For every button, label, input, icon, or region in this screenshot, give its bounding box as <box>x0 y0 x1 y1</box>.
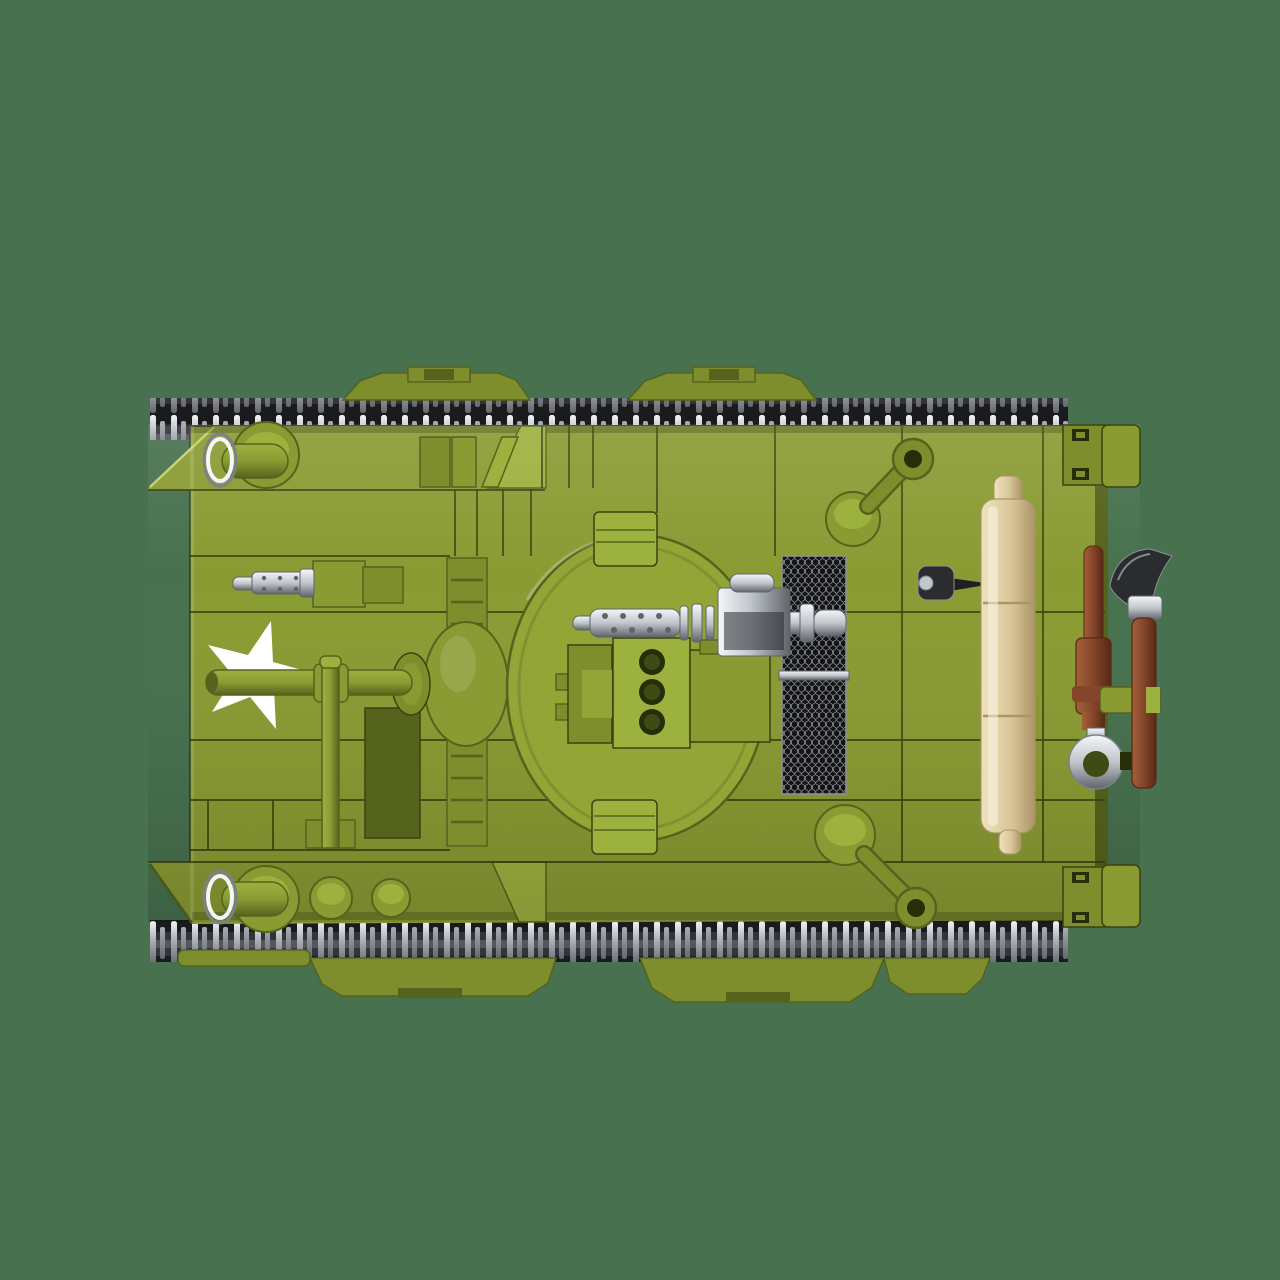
bogie-clip-notch <box>726 992 790 1002</box>
gun-muzzle <box>206 672 218 692</box>
rear-cap-top <box>1102 425 1140 487</box>
turret-clip <box>556 704 568 720</box>
gun-cross-brace <box>322 662 339 848</box>
rear-block-slot-pip <box>1076 875 1085 880</box>
tow-handle <box>1084 546 1103 644</box>
grille-divider <box>779 671 849 680</box>
turret-right-block <box>690 650 770 742</box>
mg-ring <box>680 606 688 640</box>
turret-bracket-notch <box>582 670 612 718</box>
crank-ring-hole <box>904 450 922 468</box>
mg-shaft-collar <box>800 604 814 642</box>
rear-block-slot-pip <box>1076 432 1085 438</box>
turret-plate-holes <box>639 649 665 735</box>
rear-block-slot-pip <box>1076 471 1085 477</box>
mg-shaft-tip <box>814 610 846 636</box>
pickaxe-collar <box>1128 596 1162 620</box>
bow-mg-mount <box>313 561 365 607</box>
bracket-block <box>452 437 476 487</box>
bogie-clip-notch <box>424 369 454 380</box>
mg-perforated-sleeve <box>590 609 680 637</box>
bogie-clip-notch <box>709 369 739 380</box>
turret-hatch-top <box>594 512 657 566</box>
fuel-cap-bottom-face <box>824 814 866 846</box>
turret-hatch-bottom <box>592 800 657 854</box>
mg-top-cap <box>730 574 774 592</box>
bow-mg-mount-rear <box>363 567 403 603</box>
mg-ring <box>706 606 714 640</box>
bedroll <box>981 476 1035 854</box>
bow-mg-collar <box>300 569 314 597</box>
rear-block-slot-pip <box>1076 915 1085 920</box>
bracket-block <box>420 437 450 487</box>
mg-ring <box>692 604 702 642</box>
tank-product-photo <box>0 0 1280 1280</box>
tow-ring-tab <box>1120 752 1133 770</box>
engine-grille-lower <box>782 678 846 794</box>
bogie-lip <box>178 950 310 966</box>
side-plate <box>365 708 420 838</box>
rear-cap-bottom <box>1102 865 1140 927</box>
mg-receiver-shade <box>724 612 784 650</box>
lever-cap <box>919 576 933 590</box>
bedroll-tip <box>999 830 1021 854</box>
tow-ring-hole <box>1083 751 1109 777</box>
bogie-clip-notch <box>398 988 462 998</box>
fender-disc-top <box>317 883 345 905</box>
brace-foot <box>306 820 322 848</box>
brace-foot <box>339 820 355 848</box>
gun-barrel <box>206 670 412 695</box>
fender-disc-top <box>378 884 404 904</box>
crank-ring-hole <box>907 899 925 917</box>
tow-handle-taper <box>1082 712 1105 730</box>
bedroll-highlight <box>988 506 998 826</box>
mantlet-highlight <box>440 636 476 692</box>
brace-cap <box>320 656 341 668</box>
turret-clip <box>556 674 568 690</box>
tool-clip-front <box>1146 687 1160 713</box>
